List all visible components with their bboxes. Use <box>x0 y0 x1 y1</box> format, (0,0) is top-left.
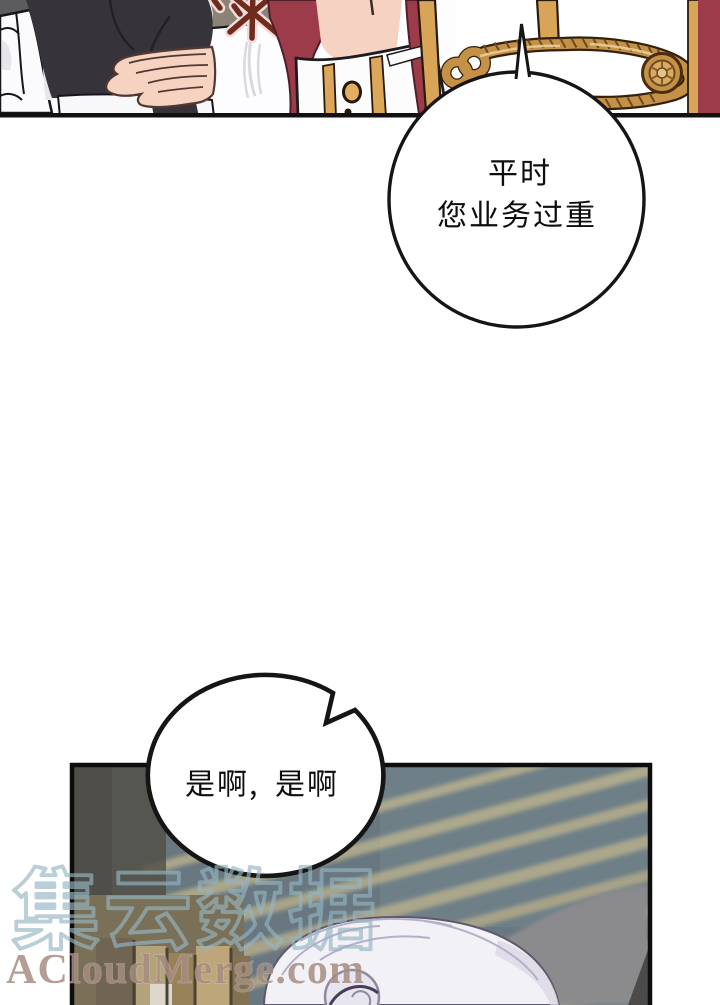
svg-text:ACloudMerge.com: ACloudMerge.com <box>6 947 364 993</box>
